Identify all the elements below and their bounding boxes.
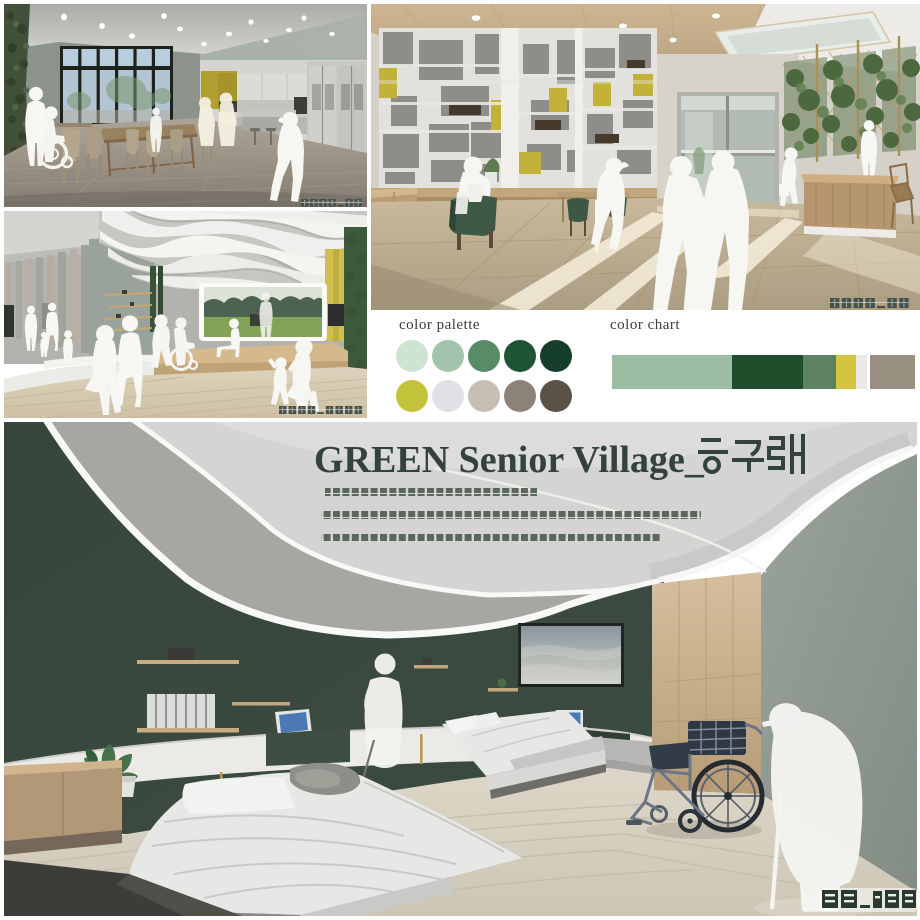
- svg-text:GREEN Senior Village_: GREEN Senior Village_: [314, 439, 705, 481]
